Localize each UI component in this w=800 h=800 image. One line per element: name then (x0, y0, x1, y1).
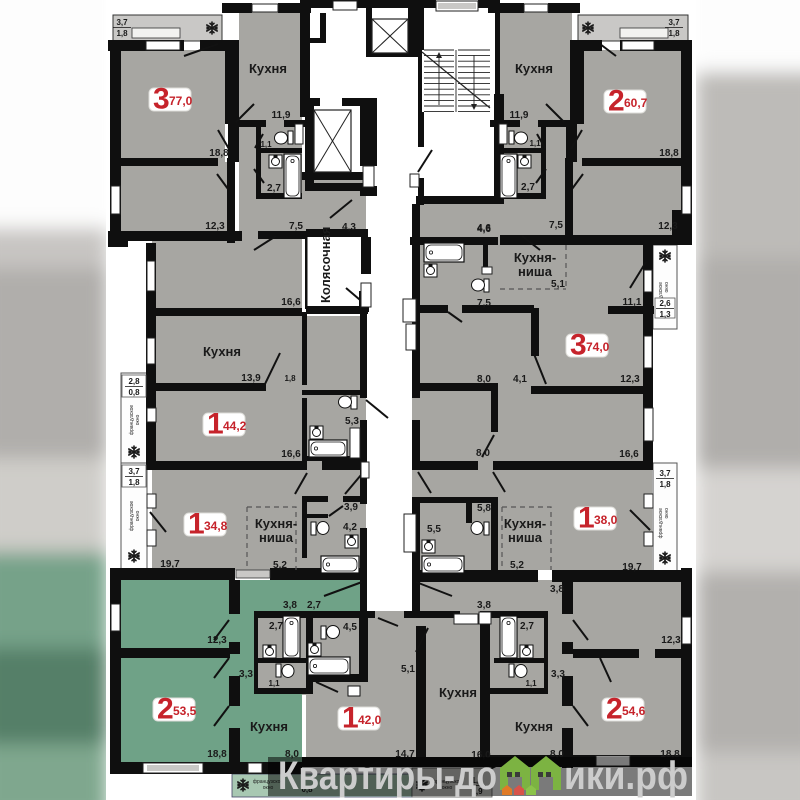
svg-text:4,3: 4,3 (342, 222, 356, 233)
svg-text:1,8: 1,8 (128, 478, 140, 487)
svg-text:54,6: 54,6 (622, 704, 646, 718)
svg-text:1,1: 1,1 (260, 140, 272, 149)
svg-text:3: 3 (570, 329, 587, 362)
svg-text:Кухня-: Кухня- (514, 250, 556, 265)
svg-text:44,2: 44,2 (223, 419, 247, 433)
svg-text:2: 2 (157, 693, 174, 726)
svg-text:Кухня-: Кухня- (255, 516, 297, 531)
svg-text:2: 2 (606, 693, 623, 726)
svg-text:34,8: 34,8 (204, 519, 228, 533)
svg-text:13,9: 13,9 (241, 373, 261, 384)
svg-text:74,0: 74,0 (586, 340, 610, 354)
svg-text:5,1: 5,1 (551, 279, 565, 290)
svg-text:18,8: 18,8 (659, 148, 679, 159)
svg-text:Кухня: Кухня (203, 344, 241, 359)
svg-text:1: 1 (188, 508, 205, 541)
svg-text:12,3: 12,3 (658, 221, 678, 232)
svg-text:Квартиры-до: Квартиры-до (278, 754, 497, 798)
svg-text:ниша: ниша (259, 530, 294, 545)
svg-text:3: 3 (153, 83, 170, 116)
svg-text:19,7: 19,7 (160, 559, 180, 570)
svg-text:2,7: 2,7 (520, 621, 534, 632)
svg-text:5,1: 5,1 (401, 664, 415, 675)
svg-text:0,8: 0,8 (128, 388, 140, 397)
svg-text:1,1: 1,1 (268, 679, 280, 688)
svg-text:2,8: 2,8 (128, 377, 140, 386)
svg-text:3,9: 3,9 (344, 502, 358, 513)
svg-text:4,2: 4,2 (343, 522, 357, 533)
svg-text:3,8: 3,8 (477, 600, 491, 611)
svg-text:8,0: 8,0 (477, 374, 491, 385)
svg-text:3,7: 3,7 (128, 467, 140, 476)
svg-text:11,1: 11,1 (623, 297, 642, 308)
svg-text:12,3: 12,3 (620, 374, 640, 385)
svg-text:38,0: 38,0 (594, 513, 618, 527)
svg-text:1: 1 (207, 408, 224, 441)
svg-text:ниша: ниша (508, 530, 543, 545)
svg-text:1,8: 1,8 (116, 29, 128, 38)
svg-text:ниша: ниша (518, 264, 553, 279)
svg-text:7,5: 7,5 (477, 298, 491, 309)
svg-text:ики.рф: ики.рф (564, 754, 688, 798)
svg-text:3,8: 3,8 (550, 584, 564, 595)
svg-text:1,8: 1,8 (668, 29, 680, 38)
svg-text:12,3: 12,3 (205, 221, 225, 232)
svg-text:1,8: 1,8 (659, 480, 671, 489)
svg-text:окно: окно (664, 282, 670, 293)
svg-text:2,7: 2,7 (521, 182, 535, 193)
svg-text:1: 1 (342, 702, 359, 735)
svg-text:16,6: 16,6 (619, 449, 639, 460)
svg-text:77,0: 77,0 (169, 94, 193, 108)
svg-text:5,2: 5,2 (273, 560, 287, 571)
svg-text:окно: окно (664, 508, 670, 519)
svg-text:2,7: 2,7 (269, 621, 283, 632)
svg-text:4,6: 4,6 (477, 224, 491, 235)
svg-text:1,3: 1,3 (659, 310, 671, 319)
svg-text:Колясочная: Колясочная (318, 227, 333, 303)
svg-text:2: 2 (608, 85, 625, 118)
svg-text:1,8: 1,8 (284, 374, 296, 383)
svg-text:3,7: 3,7 (116, 18, 128, 27)
svg-text:Кухня: Кухня (515, 719, 553, 734)
svg-text:3,3: 3,3 (239, 669, 253, 680)
svg-text:Кухня: Кухня (250, 719, 288, 734)
svg-text:окно: окно (135, 415, 141, 426)
svg-text:3,3: 3,3 (551, 669, 565, 680)
svg-text:53,5: 53,5 (173, 704, 197, 718)
svg-text:4,5: 4,5 (343, 622, 357, 633)
svg-text:окно: окно (135, 511, 141, 522)
svg-text:11,9: 11,9 (510, 110, 529, 121)
svg-text:2,7: 2,7 (307, 600, 321, 611)
svg-text:3,7: 3,7 (668, 18, 680, 27)
svg-text:5,5: 5,5 (427, 524, 441, 535)
svg-text:60,7: 60,7 (624, 96, 648, 110)
svg-text:3,7: 3,7 (659, 469, 671, 478)
svg-text:1: 1 (578, 502, 595, 535)
svg-text:2,7: 2,7 (267, 183, 281, 194)
svg-text:5,3: 5,3 (345, 416, 359, 427)
svg-text:5,8: 5,8 (477, 503, 491, 514)
svg-text:Кухня: Кухня (249, 61, 287, 76)
svg-text:8,0: 8,0 (476, 448, 490, 459)
svg-text:2,6: 2,6 (659, 299, 671, 308)
svg-text:3,8: 3,8 (283, 600, 297, 611)
svg-text:18,8: 18,8 (209, 148, 229, 159)
svg-text:11,9: 11,9 (272, 110, 291, 121)
svg-text:Кухня: Кухня (439, 685, 477, 700)
svg-text:16,6: 16,6 (281, 297, 301, 308)
svg-text:5,2: 5,2 (510, 560, 524, 571)
svg-text:4,1: 4,1 (513, 374, 527, 385)
svg-text:Кухня: Кухня (515, 61, 553, 76)
svg-text:7,5: 7,5 (289, 221, 303, 232)
svg-text:1,1: 1,1 (525, 679, 537, 688)
svg-text:1,1: 1,1 (529, 139, 541, 148)
svg-text:Кухня-: Кухня- (504, 516, 546, 531)
svg-text:12,3: 12,3 (661, 635, 681, 646)
svg-text:18,8: 18,8 (207, 749, 227, 760)
svg-text:16,6: 16,6 (281, 449, 301, 460)
svg-text:7,5: 7,5 (549, 220, 563, 231)
svg-text:12,3: 12,3 (207, 635, 227, 646)
svg-text:42,0: 42,0 (358, 713, 382, 727)
svg-text:19,7: 19,7 (622, 562, 642, 573)
